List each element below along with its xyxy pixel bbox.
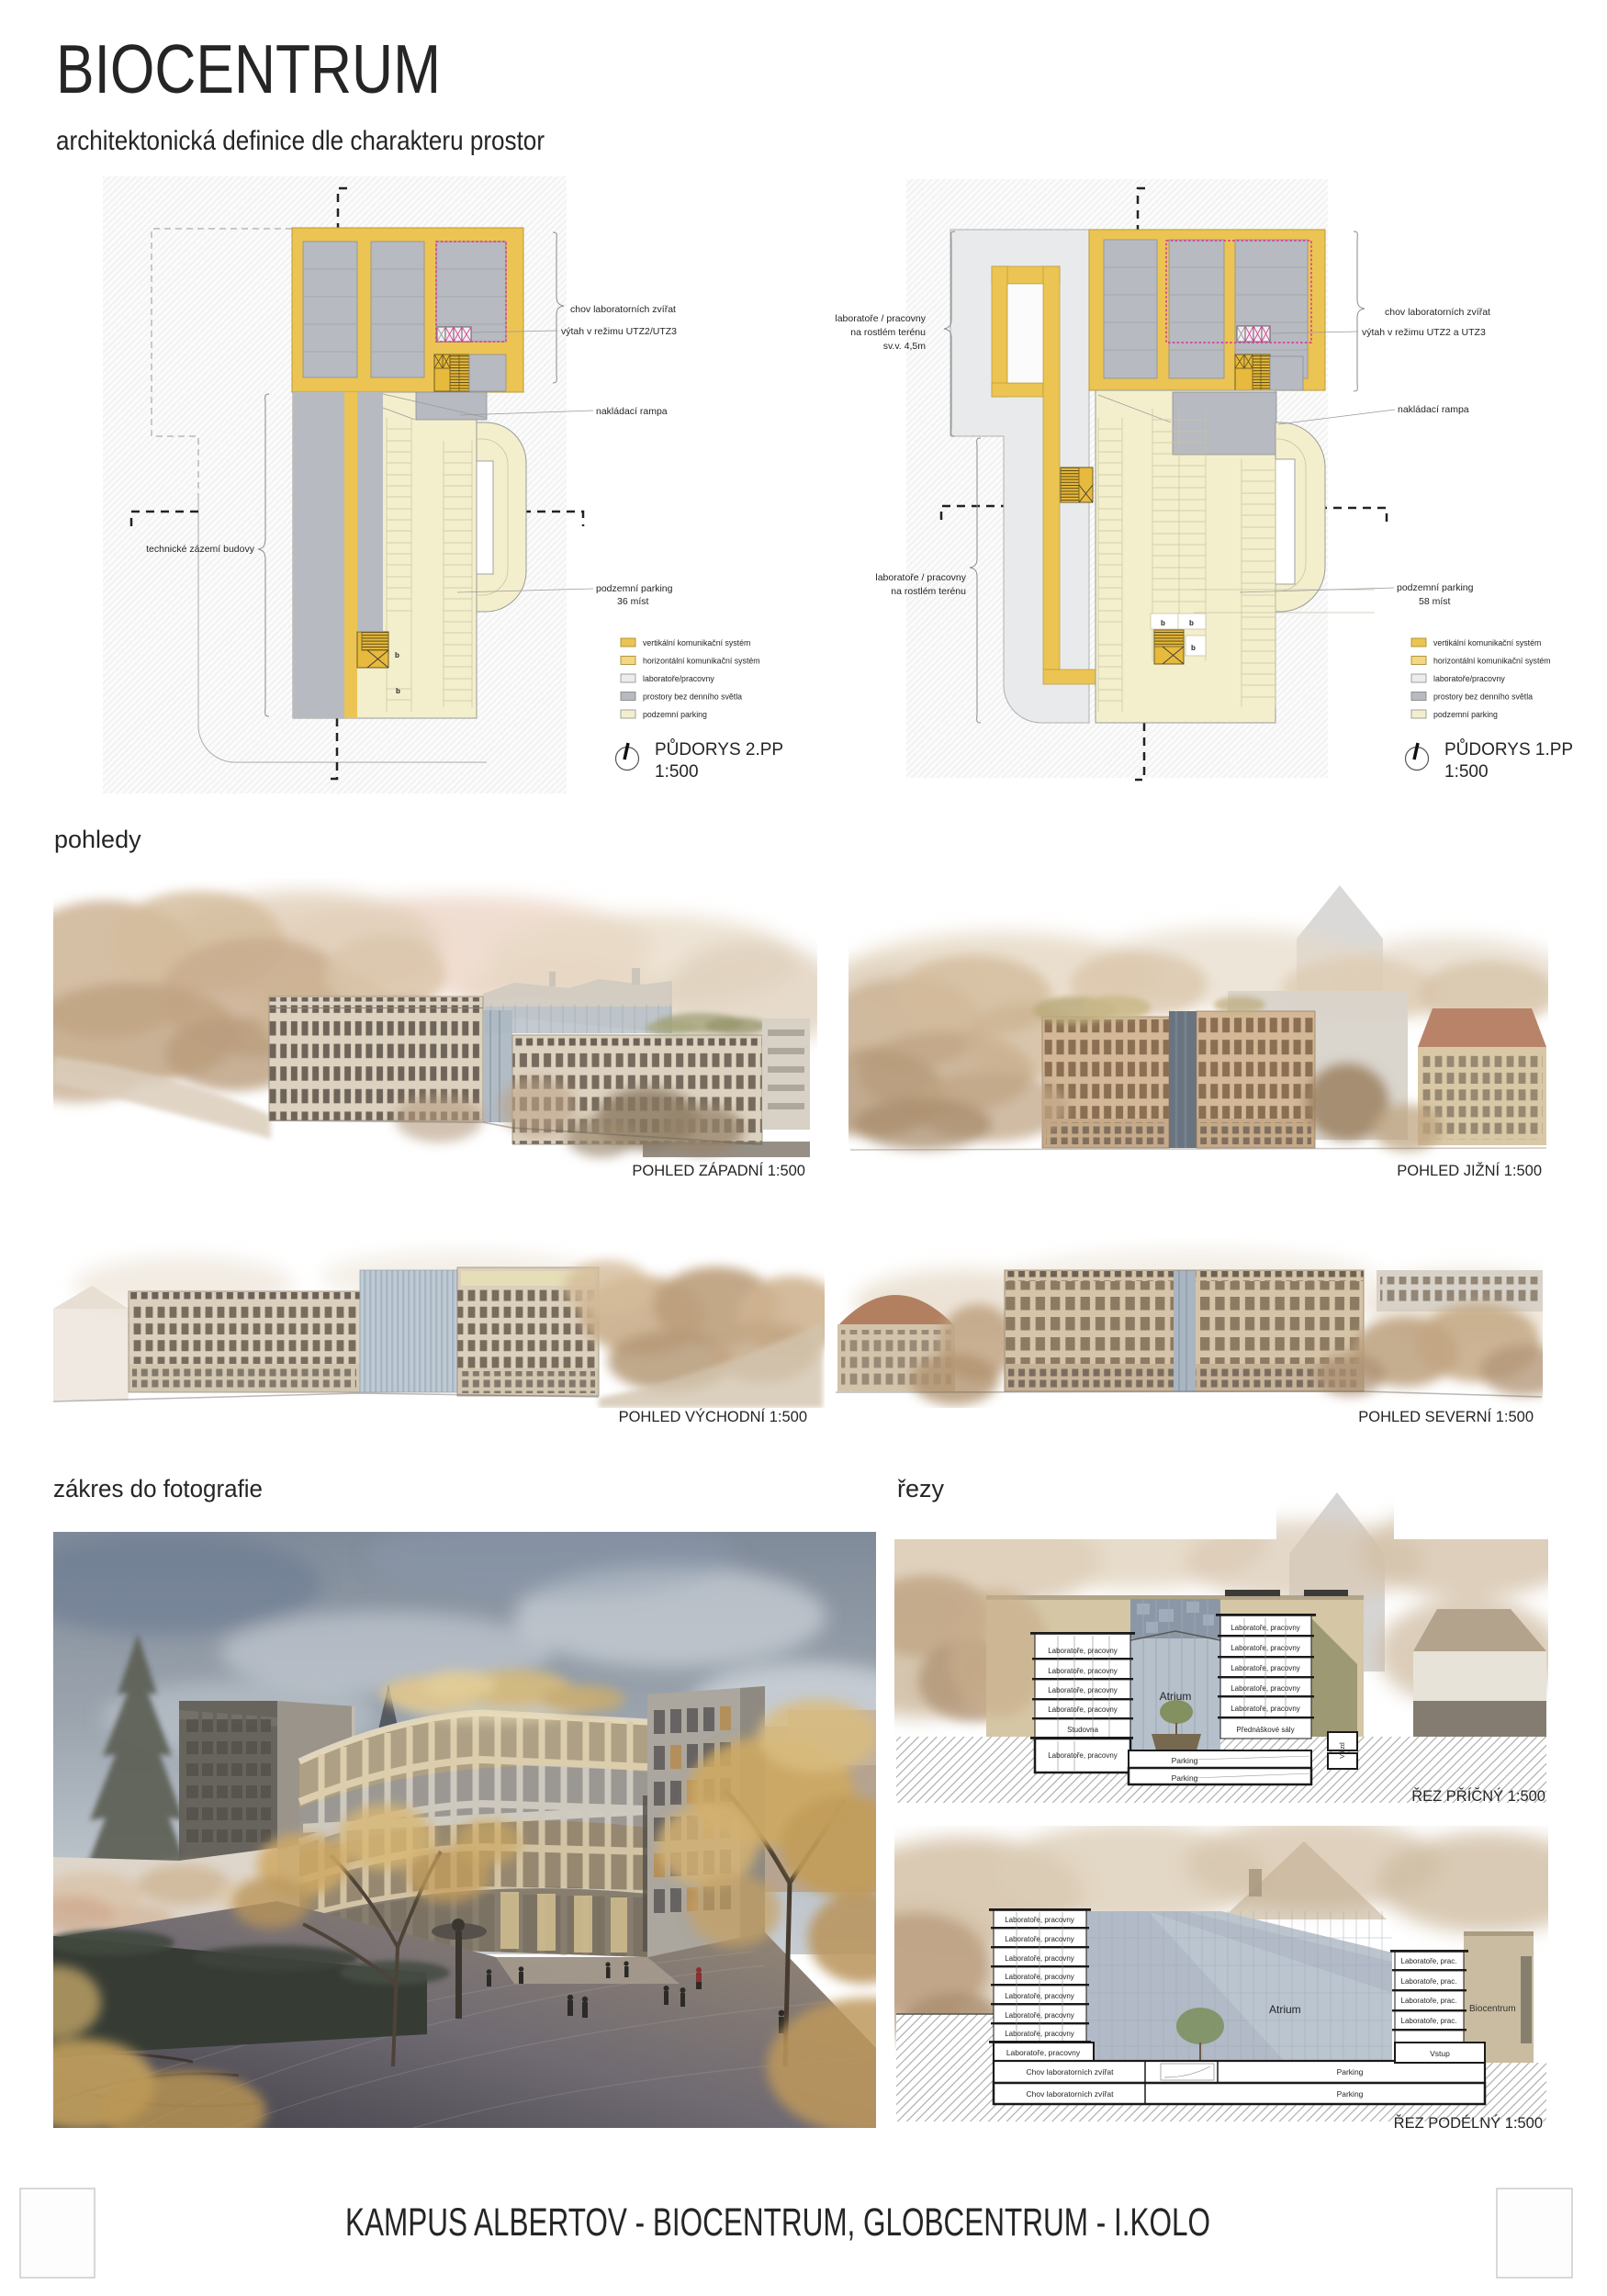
svg-text:KAMPUS ALBERTOV - BIOCENTRUM,: KAMPUS ALBERTOV - BIOCENTRUM, GLOBCENTRU… — [345, 2200, 1210, 2245]
svg-text:chov laboratorních zvířat: chov laboratorních zvířat — [1385, 307, 1490, 318]
svg-text:1:500: 1:500 — [655, 762, 699, 782]
svg-text:výtah v režimu UTZ2/UTZ3: výtah v režimu UTZ2/UTZ3 — [561, 326, 677, 337]
svg-text:na rostlém terénu: na rostlém terénu — [891, 586, 966, 597]
svg-text:PŮDORYS 2.PP: PŮDORYS 2.PP — [655, 739, 783, 760]
svg-text:b: b — [395, 651, 399, 659]
svg-text:Laboratoře, pracovny: Laboratoře, pracovny — [1231, 1705, 1300, 1713]
svg-text:nakládací rampa: nakládací rampa — [1398, 404, 1469, 415]
svg-text:Parking: Parking — [1172, 1756, 1198, 1765]
svg-text:Laboratoře, pracovny: Laboratoře, pracovny — [1231, 1664, 1300, 1672]
svg-text:POHLED SEVERNÍ 1:500: POHLED SEVERNÍ 1:500 — [1358, 1408, 1534, 1425]
svg-text:b: b — [1161, 619, 1165, 627]
svg-text:Biocentrum: Biocentrum — [1469, 2004, 1516, 2014]
svg-text:POHLED JIŽNÍ 1:500: POHLED JIŽNÍ 1:500 — [1397, 1162, 1542, 1179]
svg-text:pohledy: pohledy — [54, 826, 141, 853]
svg-text:b: b — [1191, 644, 1196, 652]
svg-text:Vstup: Vstup — [1430, 2049, 1450, 2058]
svg-text:Laboratoře, pracovny: Laboratoře, pracovny — [1231, 1684, 1300, 1693]
svg-text:technické zázemí budovy: technické zázemí budovy — [146, 544, 255, 555]
svg-text:Laboratoře, pracovny: Laboratoře, pracovny — [1005, 2011, 1074, 2020]
svg-text:Laboratoře, prac.: Laboratoře, prac. — [1401, 1957, 1457, 1965]
svg-text:b: b — [1189, 619, 1194, 627]
svg-text:laboratoře / pracovny: laboratoře / pracovny — [875, 572, 966, 583]
svg-text:Přednáškové sály: Přednáškové sály — [1236, 1726, 1294, 1734]
svg-text:sv.v. 4,5m: sv.v. 4,5m — [883, 341, 927, 352]
svg-text:Laboratoře, pracovny: Laboratoře, pracovny — [1048, 1705, 1118, 1714]
svg-text:Laboratoře, pracovny: Laboratoře, pracovny — [1005, 2030, 1074, 2038]
svg-text:Atrium: Atrium — [1269, 2003, 1301, 2016]
svg-text:POHLED ZÁPADNÍ 1:500: POHLED ZÁPADNÍ 1:500 — [632, 1162, 805, 1179]
svg-text:laboratoře/pracovny: laboratoře/pracovny — [643, 674, 714, 683]
svg-text:Laboratoře, pracovny: Laboratoře, pracovny — [1048, 1667, 1118, 1675]
svg-text:Laboratoře, pracovny: Laboratoře, pracovny — [1231, 1644, 1300, 1652]
svg-text:BIOCENTRUM: BIOCENTRUM — [56, 30, 441, 107]
svg-text:Parking: Parking — [1337, 2067, 1364, 2077]
svg-text:Studovna: Studovna — [1067, 1726, 1098, 1734]
svg-text:ŘEZ PŘÍČNÝ 1:500: ŘEZ PŘÍČNÝ 1:500 — [1411, 1787, 1545, 1805]
svg-text:Laboratoře, pracovny: Laboratoře, pracovny — [1048, 1647, 1118, 1655]
svg-text:Laboratoře, prac.: Laboratoře, prac. — [1401, 1977, 1457, 1986]
svg-text:Laboratoře, prac.: Laboratoře, prac. — [1401, 2017, 1457, 2025]
svg-text:Laboratoře, pracovny: Laboratoře, pracovny — [1006, 2048, 1081, 2057]
svg-text:Laboratoře, pracovny: Laboratoře, pracovny — [1005, 1973, 1074, 1981]
svg-text:b: b — [396, 687, 400, 695]
svg-text:Laboratoře, pracovny: Laboratoře, pracovny — [1005, 1935, 1074, 1943]
svg-text:Laboratoře, pracovny: Laboratoře, pracovny — [1048, 1686, 1118, 1694]
svg-text:zákres do fotografie: zákres do fotografie — [53, 1475, 263, 1503]
svg-text:laboratoře / pracovny: laboratoře / pracovny — [835, 313, 926, 324]
svg-text:58 míst: 58 míst — [1419, 596, 1451, 607]
svg-text:Parking: Parking — [1172, 1773, 1198, 1783]
svg-text:36 míst: 36 míst — [617, 596, 649, 607]
svg-text:vertikální komunikační systém: vertikální komunikační systém — [1433, 638, 1541, 647]
svg-text:podzemní parking: podzemní parking — [643, 710, 707, 719]
svg-text:podzemní parking: podzemní parking — [1433, 710, 1498, 719]
svg-text:prostory bez denního světla: prostory bez denního světla — [1433, 692, 1533, 702]
svg-text:laboratoře/pracovny: laboratoře/pracovny — [1433, 674, 1505, 683]
svg-text:PŮDORYS 1.PP: PŮDORYS 1.PP — [1444, 739, 1573, 760]
svg-text:vertikální komunikační systém: vertikální komunikační systém — [643, 638, 750, 647]
svg-text:architektonická definice dle c: architektonická definice dle charakteru … — [56, 126, 545, 156]
svg-text:Laboratoře, pracovny: Laboratoře, pracovny — [1005, 1992, 1074, 2000]
svg-text:Laboratoře, pracovny: Laboratoře, pracovny — [1005, 1916, 1074, 1924]
svg-text:Vjezd: Vjezd — [1340, 1742, 1346, 1759]
svg-text:prostory bez denního světla: prostory bez denního světla — [643, 692, 742, 702]
svg-text:Laboratoře, pracovny: Laboratoře, pracovny — [1005, 1954, 1074, 1963]
svg-text:Atrium: Atrium — [1160, 1690, 1192, 1703]
svg-text:chov laboratorních zvířat: chov laboratorních zvířat — [570, 304, 676, 315]
svg-text:Laboratoře, pracovny: Laboratoře, pracovny — [1048, 1751, 1118, 1760]
svg-text:podzemní parking: podzemní parking — [596, 583, 673, 594]
svg-text:ŘEZ PODÉLNÝ 1:500: ŘEZ PODÉLNÝ 1:500 — [1394, 2114, 1543, 2132]
svg-text:Parking: Parking — [1337, 2089, 1364, 2099]
svg-text:výtah v režimu UTZ2 a UTZ3: výtah v režimu UTZ2 a UTZ3 — [1362, 327, 1486, 338]
svg-text:1:500: 1:500 — [1444, 762, 1489, 782]
svg-text:nakládací rampa: nakládací rampa — [596, 406, 668, 417]
svg-text:Chov laboratorních zvířat: Chov laboratorních zvířat — [1027, 2067, 1115, 2077]
svg-text:podzemní parking: podzemní parking — [1397, 582, 1474, 593]
svg-text:Laboratoře, prac.: Laboratoře, prac. — [1401, 1997, 1457, 2005]
svg-text:na rostlém terénu: na rostlém terénu — [850, 327, 926, 338]
svg-text:Laboratoře, pracovny: Laboratoře, pracovny — [1231, 1624, 1300, 1632]
svg-text:POHLED VÝCHODNÍ 1:500: POHLED VÝCHODNÍ 1:500 — [619, 1408, 807, 1425]
svg-text:horizontální komunikační systé: horizontální komunikační systém — [643, 657, 760, 666]
svg-text:Chov laboratorních zvířat: Chov laboratorních zvířat — [1027, 2089, 1115, 2099]
svg-text:řezy: řezy — [897, 1475, 945, 1503]
svg-text:horizontální komunikační systé: horizontální komunikační systém — [1433, 657, 1551, 666]
